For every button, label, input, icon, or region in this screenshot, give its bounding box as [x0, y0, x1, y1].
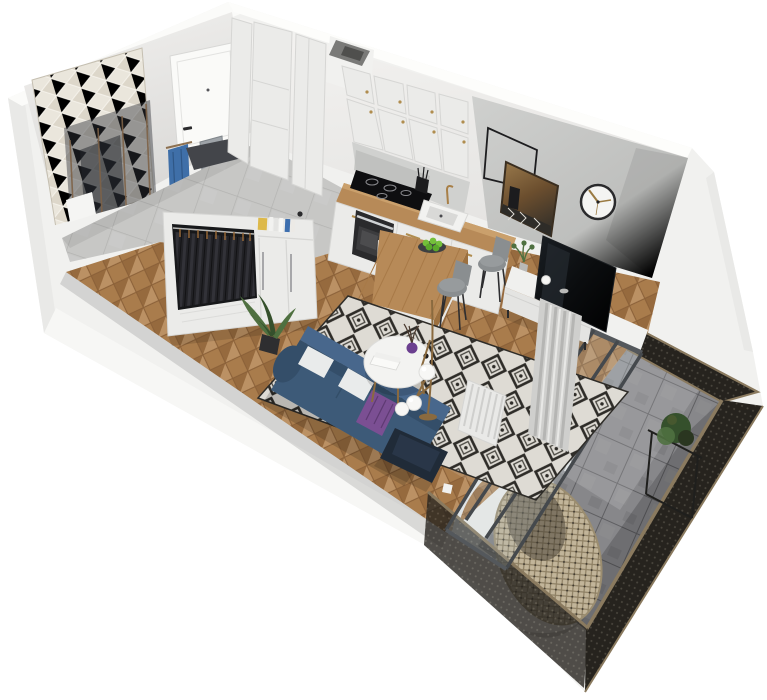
pepper-mill	[508, 186, 520, 210]
gray-bowl	[560, 289, 569, 294]
wall-clock	[581, 185, 615, 219]
white-vase	[542, 276, 551, 285]
hanging-clothes	[175, 232, 255, 307]
render-canvas	[0, 0, 767, 700]
wall-end-cap	[442, 483, 453, 494]
door-peephole	[207, 89, 210, 92]
apartment-3d-floorplan-render	[0, 0, 767, 700]
open-wardrobe	[163, 211, 321, 346]
decor-bottle	[297, 211, 302, 216]
